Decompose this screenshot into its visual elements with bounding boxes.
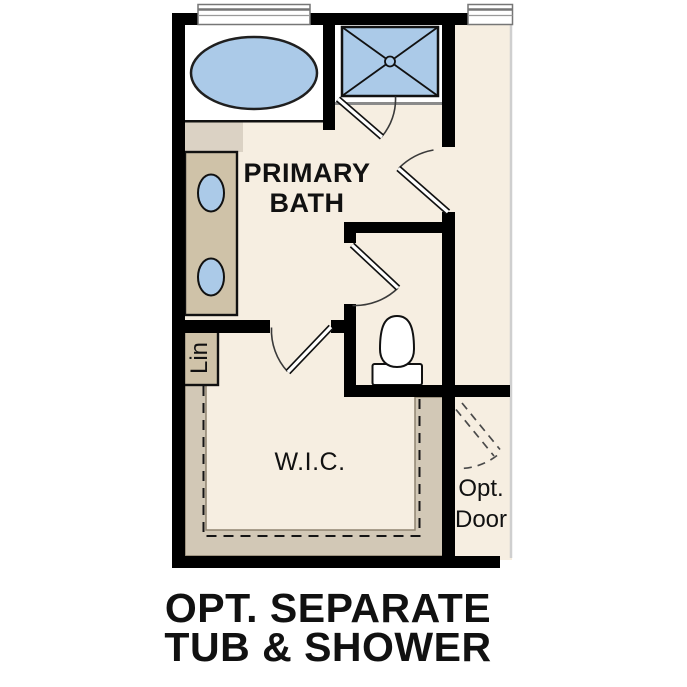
sink-2 — [198, 259, 224, 296]
counter-return — [185, 122, 243, 152]
primary-bath-label-line2: BATH — [270, 188, 345, 218]
wall-toilet-top — [344, 222, 442, 233]
wall-tub-right — [323, 25, 335, 130]
opt-door-label-line1: Opt. — [458, 475, 503, 502]
wall-bottom — [172, 556, 500, 568]
wall-wic-top-right — [344, 385, 510, 397]
tub-deck-edge — [185, 120, 323, 123]
tub-window — [198, 5, 310, 25]
wall-bath-wic-left — [185, 320, 270, 333]
primary-bath-label-line1: PRIMARY — [243, 158, 370, 188]
wall-right-lower — [442, 212, 455, 556]
wall-left — [172, 13, 185, 568]
opt-door-label-line2: Door — [455, 506, 507, 533]
wall-toilet-left-upper — [344, 222, 356, 243]
floor-plan-drawing: PRIMARY BATH W.I.C. Lin Opt. Door OPT. S… — [0, 0, 687, 687]
toilet-bowl — [380, 316, 414, 367]
sink-1 — [198, 175, 224, 212]
floor-plan: PRIMARY BATH W.I.C. Lin Opt. Door OPT. S… — [0, 0, 687, 687]
wall-right-upper — [442, 13, 455, 147]
bathtub — [191, 37, 317, 109]
wic-label: W.I.C. — [274, 448, 345, 476]
caption-line2: TUB & SHOWER — [164, 624, 491, 670]
shower-drain — [385, 57, 395, 67]
linen-label: Lin — [186, 342, 213, 374]
corner-window — [468, 5, 513, 25]
wall-toilet-left-lower — [344, 304, 356, 397]
